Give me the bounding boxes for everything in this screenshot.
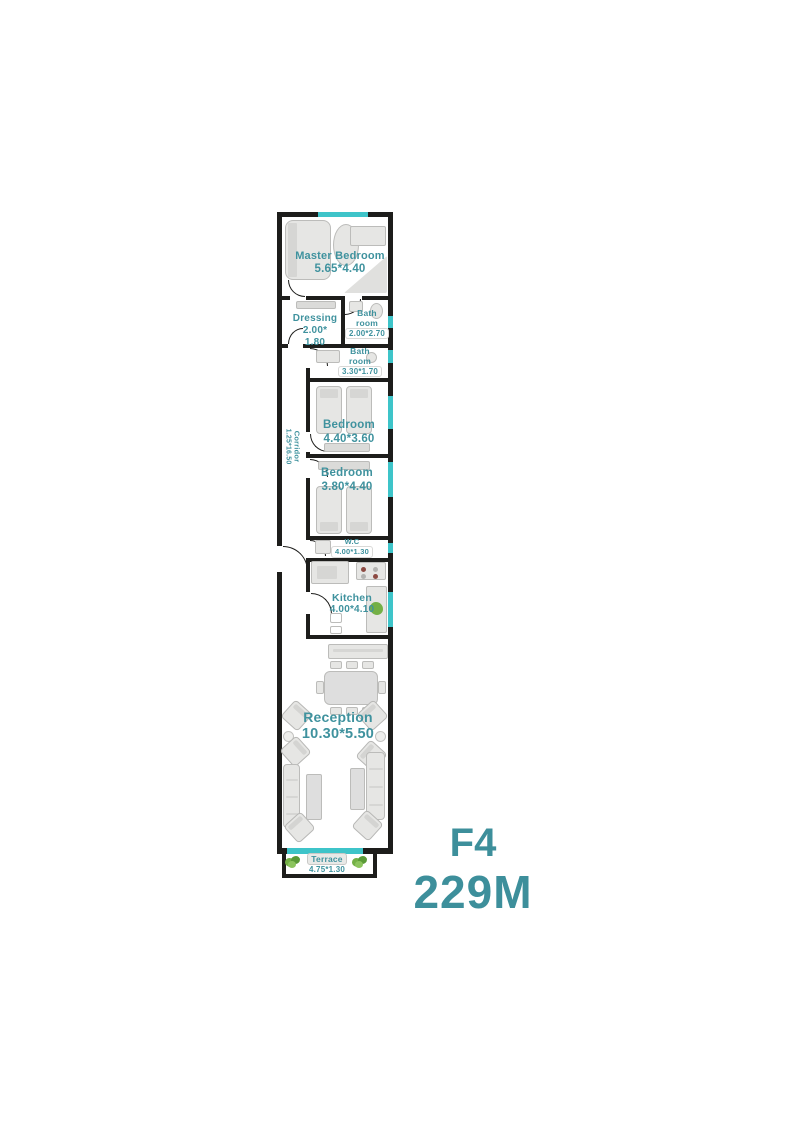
label-reception: Reception 10.30*5.50 [283, 709, 393, 743]
label-bedroom-first: Bedroom 4.40*3.60 [304, 419, 394, 446]
sofa-right [366, 752, 385, 820]
label-dressing: Dressing 2.00* 1.80 [290, 313, 340, 348]
plan-code: F4 [398, 820, 548, 866]
kitchen-name: Kitchen [307, 592, 397, 604]
dining-table [324, 671, 378, 705]
dining-chair-l [316, 681, 324, 694]
master-dresser [350, 226, 386, 246]
floor-plan-page: Master Bedroom 5.65*4.40 Dressing 2.00* … [0, 0, 800, 1131]
coffee-table-right [350, 768, 365, 810]
terrace-name: Terrace [307, 853, 347, 865]
label-kitchen: Kitchen 4.00*4.10 [307, 592, 397, 616]
bedroom-second-name: Bedroom [302, 467, 392, 481]
master-bedroom-dims: 5.65*4.40 [288, 263, 392, 277]
reception-name: Reception [283, 709, 393, 726]
label-bedroom-second: Bedroom 3.80*4.40 [302, 467, 392, 494]
wall-bath-mid-bottom [306, 378, 393, 382]
corridor-name: Corridor [292, 407, 301, 487]
wall-left-upper [277, 212, 282, 546]
wall-kitchen-bottom [306, 635, 393, 639]
label-bathroom-mid: Bath room 3.30*1.70 [334, 346, 386, 377]
wc-dims: 4.00*1.30 [331, 546, 373, 557]
bedroom-first-dims: 4.40*3.60 [304, 433, 394, 447]
reception-dims: 10.30*5.50 [283, 726, 393, 743]
terrace-dims: 4.75*1.30 [292, 865, 362, 875]
wall-row-bottom-a [282, 344, 288, 348]
wall-master-bottom-c [362, 296, 388, 300]
label-master-bedroom: Master Bedroom 5.65*4.40 [288, 250, 392, 277]
bedroom-first-name: Bedroom [304, 419, 394, 433]
master-bedroom-name: Master Bedroom [288, 250, 392, 263]
bathroom-mid-name-2: room [334, 356, 386, 366]
kitchen-counter [311, 561, 349, 584]
wall-master-bottom-b [306, 296, 345, 300]
dressing-wardrobe [296, 301, 336, 309]
dining-chair-r [378, 681, 386, 694]
dressing-dims-2: 1.80 [290, 337, 340, 349]
dining-chair-t1 [330, 661, 342, 669]
kitchen-box-2 [330, 626, 342, 634]
dressing-dims-1: 2.00* [290, 325, 340, 337]
plan-area: 229M [398, 866, 548, 919]
label-bathroom-top: Bath room 2.00*2.70 [345, 308, 389, 339]
label-corridor: Corridor 1.25*16.50 [283, 407, 300, 487]
door-master-bedroom [288, 280, 305, 297]
corridor-dims: 1.25*16.50 [283, 407, 291, 487]
wc-name: W.C [312, 537, 392, 546]
plan-title: F4 229M [398, 820, 548, 919]
dressing-name: Dressing [290, 313, 340, 325]
wall-left-lower [277, 572, 282, 854]
wall-reception-bottom [363, 848, 393, 854]
coffee-table-left [306, 774, 322, 820]
label-terrace: Terrace 4.75*1.30 [292, 853, 362, 875]
door-entrance [283, 546, 308, 571]
bathroom-top-name-2: room [345, 318, 389, 328]
dining-chair-t3 [362, 661, 374, 669]
bathroom-mid-name-1: Bath [334, 346, 386, 356]
wall-bedroom-divider [306, 454, 393, 458]
reception-sideboard [328, 644, 388, 659]
bedroom-second-dims: 3.80*4.40 [302, 481, 392, 495]
kitchen-dims: 4.00*4.10 [307, 604, 397, 616]
wall-master-bottom-a [282, 296, 290, 300]
dining-chair-t2 [346, 661, 358, 669]
bathroom-top-name-1: Bath [345, 308, 389, 318]
bathroom-mid-dims: 3.30*1.70 [338, 366, 382, 377]
window-top [318, 212, 368, 217]
kitchen-stove [356, 562, 386, 580]
bathroom-top-dims: 2.00*2.70 [345, 328, 389, 339]
label-wc: W.C 4.00*1.30 [312, 537, 392, 558]
window-bathroom-mid [388, 350, 393, 363]
